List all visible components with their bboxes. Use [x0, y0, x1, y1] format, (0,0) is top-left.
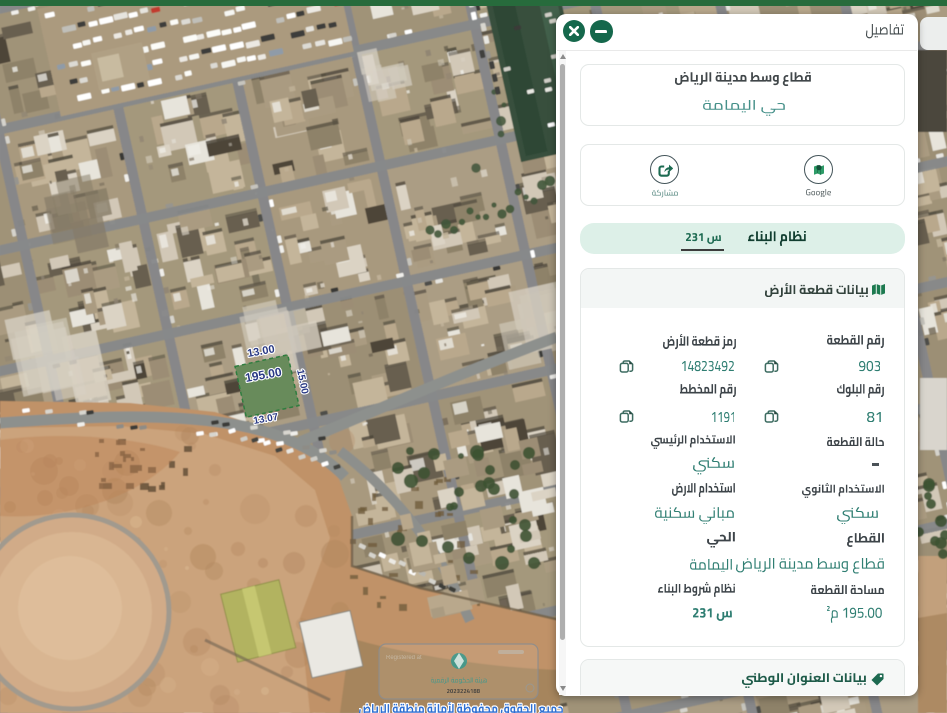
svg-text:Registered at: Registered at	[386, 655, 422, 661]
